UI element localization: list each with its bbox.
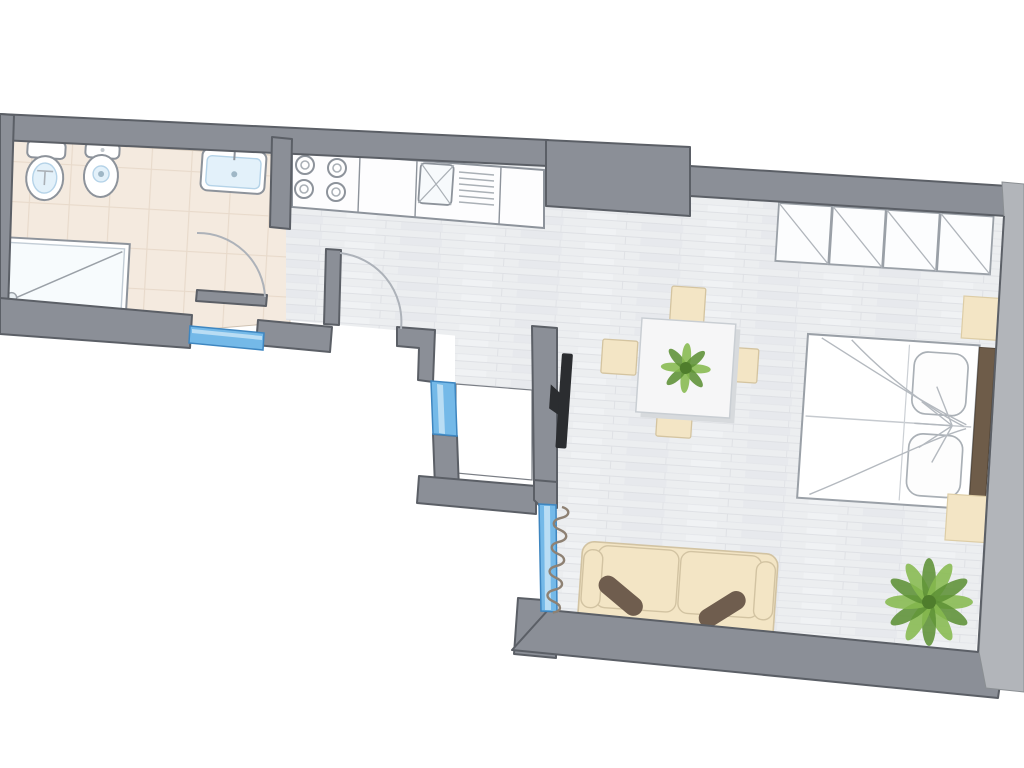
kitchen-sink [418,163,454,205]
bed-pillow [906,433,964,498]
burner-icon [327,183,345,201]
dining-table [635,318,740,423]
window-bottom-left [189,326,264,350]
burner-icon [295,180,313,198]
passage-floor [455,335,535,390]
window-shaft [431,381,457,436]
wall-shaft-bottom [417,476,536,514]
burner-icon [296,156,314,174]
burner-icon [328,159,346,177]
toilet [24,140,66,201]
bed-pillow [911,351,969,416]
wall-shaft-top-left [397,327,435,382]
double-bed [797,334,995,510]
wall-partition-bathroom [270,137,292,229]
light-shaft-void [456,384,532,480]
entry-door-leaf[interactable] [324,249,341,325]
floor-plan-drawing [0,0,1024,768]
chair-top [670,286,706,323]
floor-plan-page [0,0,1024,768]
wall-block-hall-bottom [256,320,332,352]
sofa-arm-left [580,549,603,608]
sofa-arm-right [753,561,776,620]
wall-kitchen-block [546,140,690,216]
chair-left [601,339,638,375]
bidet [83,142,120,198]
